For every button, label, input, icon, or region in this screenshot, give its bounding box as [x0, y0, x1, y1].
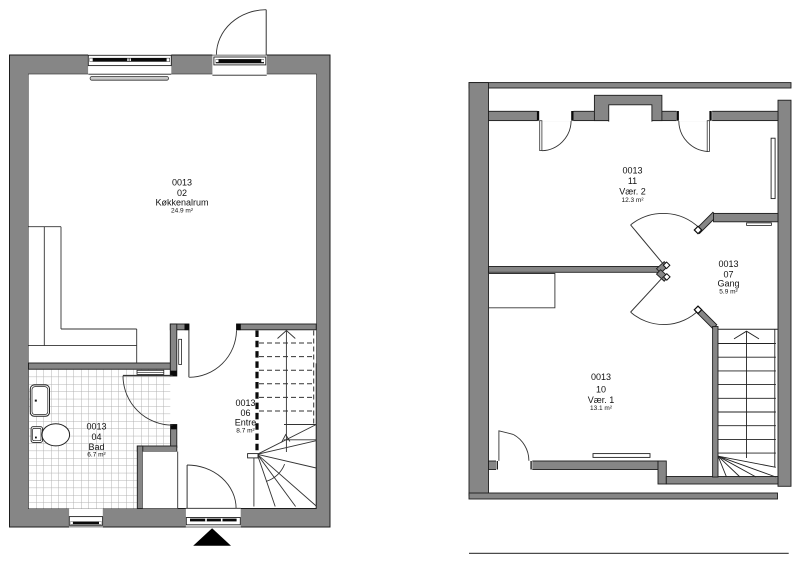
svg-text:04: 04	[91, 432, 101, 442]
svg-text:0013: 0013	[235, 398, 255, 408]
svg-text:Gang: Gang	[717, 279, 739, 289]
svg-text:24.9 m²: 24.9 m²	[171, 208, 194, 215]
svg-text:Vær. 2: Vær. 2	[619, 187, 646, 197]
svg-text:10: 10	[596, 384, 606, 394]
svg-text:8.7 m²: 8.7 m²	[236, 428, 255, 435]
svg-text:Køkkenalrum: Køkkenalrum	[155, 198, 208, 208]
svg-text:06: 06	[240, 408, 250, 418]
svg-text:12.3 m²: 12.3 m²	[621, 197, 644, 204]
svg-text:5.9 m²: 5.9 m²	[719, 288, 738, 295]
svg-text:02: 02	[177, 188, 187, 198]
svg-text:0013: 0013	[86, 421, 106, 431]
svg-text:13.1 m²: 13.1 m²	[590, 405, 613, 412]
svg-text:0013: 0013	[718, 259, 738, 269]
svg-text:11: 11	[628, 176, 637, 186]
svg-text:Vær. 1: Vær. 1	[588, 395, 615, 405]
svg-text:0013: 0013	[622, 166, 642, 176]
svg-text:Entre: Entre	[235, 418, 257, 428]
svg-text:6.7 m²: 6.7 m²	[87, 451, 106, 458]
svg-text:0013: 0013	[591, 372, 611, 382]
svg-text:0013: 0013	[172, 178, 192, 188]
